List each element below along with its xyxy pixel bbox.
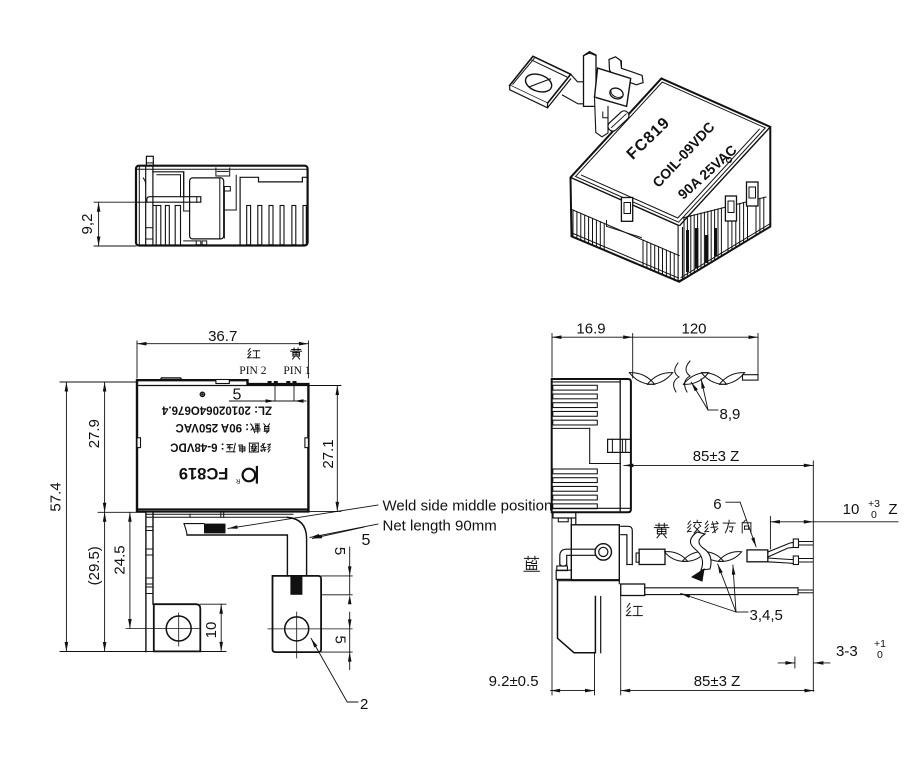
svg-text:0: 0 <box>871 509 877 521</box>
svg-text:Z: Z <box>888 501 897 518</box>
svg-text:9.2±0.5: 9.2±0.5 <box>489 673 539 690</box>
svg-text:FC819: FC819 <box>179 464 229 482</box>
svg-text:9,2: 9,2 <box>79 214 96 235</box>
svg-text:120: 120 <box>681 321 706 338</box>
svg-text:57.4: 57.4 <box>48 482 65 511</box>
svg-text:R: R <box>235 477 240 483</box>
svg-text:Weld side middle position: Weld side middle position <box>383 498 553 515</box>
svg-text:5: 5 <box>362 532 371 549</box>
svg-text:: 90A 250VAC: : 90A 250VAC <box>175 421 249 433</box>
svg-text:24.5: 24.5 <box>111 545 128 574</box>
svg-text:: 6-48VDC: : 6-48VDC <box>170 440 224 452</box>
svg-text:PIN 2: PIN 2 <box>239 365 266 377</box>
svg-text:0: 0 <box>877 649 883 661</box>
svg-text:6: 6 <box>713 496 721 513</box>
svg-text:2: 2 <box>360 696 368 713</box>
svg-text:5: 5 <box>331 547 348 555</box>
svg-text:8,9: 8,9 <box>720 406 741 423</box>
svg-text:ZL: 20102064O676.4: ZL: 20102064O676.4 <box>161 404 272 416</box>
svg-text:85±3 Z: 85±3 Z <box>693 448 740 465</box>
svg-text:27.1: 27.1 <box>320 439 337 468</box>
svg-text:5: 5 <box>233 387 242 404</box>
svg-text:16.9: 16.9 <box>576 321 605 338</box>
svg-text:85±3 Z: 85±3 Z <box>694 673 741 690</box>
svg-text:3-3: 3-3 <box>836 643 858 660</box>
svg-text:5: 5 <box>332 636 349 644</box>
svg-text:10: 10 <box>843 501 860 518</box>
svg-text:10: 10 <box>203 622 220 639</box>
svg-text:Net length 90mm: Net length 90mm <box>383 518 497 535</box>
svg-text:PIN 1: PIN 1 <box>283 365 310 377</box>
svg-text:27.9: 27.9 <box>86 419 103 448</box>
svg-text:3,4,5: 3,4,5 <box>750 607 783 624</box>
svg-text:36.7: 36.7 <box>208 328 237 345</box>
svg-text:(29.5): (29.5) <box>86 546 103 585</box>
